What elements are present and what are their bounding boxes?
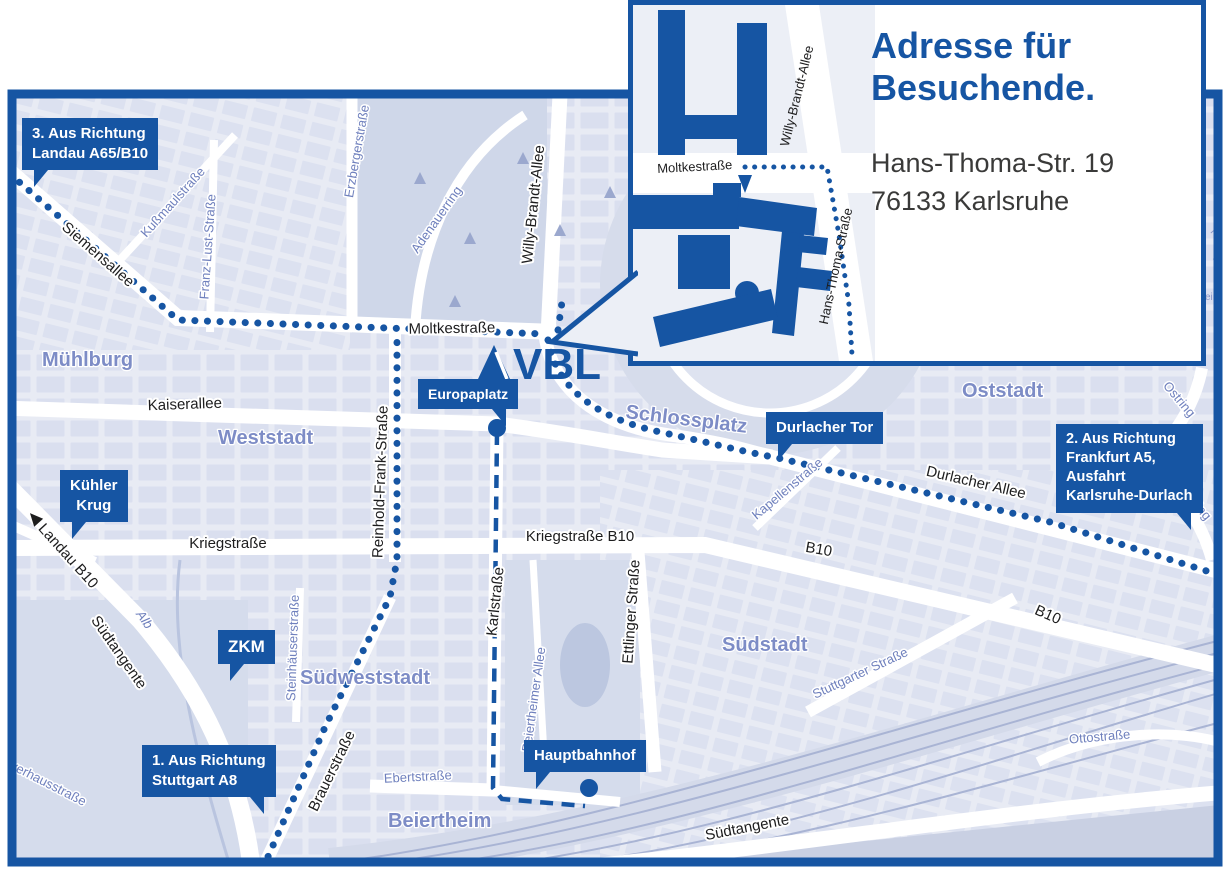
marker-durlacher-tor: Durlacher Tor [766,412,883,444]
marker-from-frankfurt: 2. Aus Richtung Frankfurt A5, Ausfahrt K… [1056,424,1203,513]
address-line: Hans-Thoma-Str. 19 [871,145,1114,183]
marker-line: Stuttgart A8 [152,771,266,791]
district-label: Südstadt [722,634,808,656]
street-label: Kaiserallee [147,395,222,415]
district-label: Weststadt [218,427,314,449]
marker-line: Hauptbahnhof [534,746,636,766]
marker-line: Landau A65/B10 [32,144,148,164]
marker-line: Ausfahrt [1066,468,1193,487]
marker-line: Europaplatz [428,385,508,403]
marker-line: Karlsruhe-Durlach [1066,487,1193,506]
marker-line: ZKM [228,636,265,658]
marker-europaplatz: Europaplatz [418,379,518,409]
marker-line: Kühler [70,476,118,496]
marker-line: Durlacher Tor [776,418,873,438]
marker-line: Frankfurt A5, [1066,449,1193,468]
visitor-address: Hans-Thoma-Str. 19 76133 Karlsruhe [871,145,1114,221]
inset-title: Adresse für Besuchende. [871,25,1095,109]
district-label: Beiertheim [388,810,491,832]
inset-title-line: Besuchende. [871,67,1095,109]
marker-from-landau: 3. Aus Richtung Landau A65/B10 [22,118,158,170]
marker-from-stuttgart: 1. Aus Richtung Stuttgart A8 [142,745,276,797]
marker-hauptbahnhof: Hauptbahnhof [524,740,646,772]
marker-line: Krug [70,496,118,516]
street-label: Moltkestraße [408,319,495,338]
inset-title-line: Adresse für [871,25,1095,67]
district-label: Mühlburg [42,349,133,371]
hardtwald-park [352,95,547,333]
district-label: Oststadt [962,380,1043,402]
karlsruhe-direction-map: Siemensallee Moltkestraße Kaiserallee Wi… [0,0,1230,874]
marker-kuehler-krug: Kühler Krug [60,470,128,522]
hauptbahnhof-stop-dot [580,779,598,797]
marker-line: 2. Aus Richtung [1066,430,1193,449]
inset-pointer-tail [546,262,638,358]
address-line: 76133 Karlsruhe [871,183,1114,221]
marker-line: 3. Aus Richtung [32,124,148,144]
pond [560,623,610,707]
visitor-address-inset: Moltkestraße Willy-Brandt-Allee Hans-Tho… [628,0,1206,366]
district-label: Südweststadt [300,667,430,689]
marker-zkm: ZKM [218,630,275,664]
street-label: Kriegstraße B10 [526,528,634,545]
marker-line: 1. Aus Richtung [152,751,266,771]
street-label: Kriegstraße [189,535,267,552]
